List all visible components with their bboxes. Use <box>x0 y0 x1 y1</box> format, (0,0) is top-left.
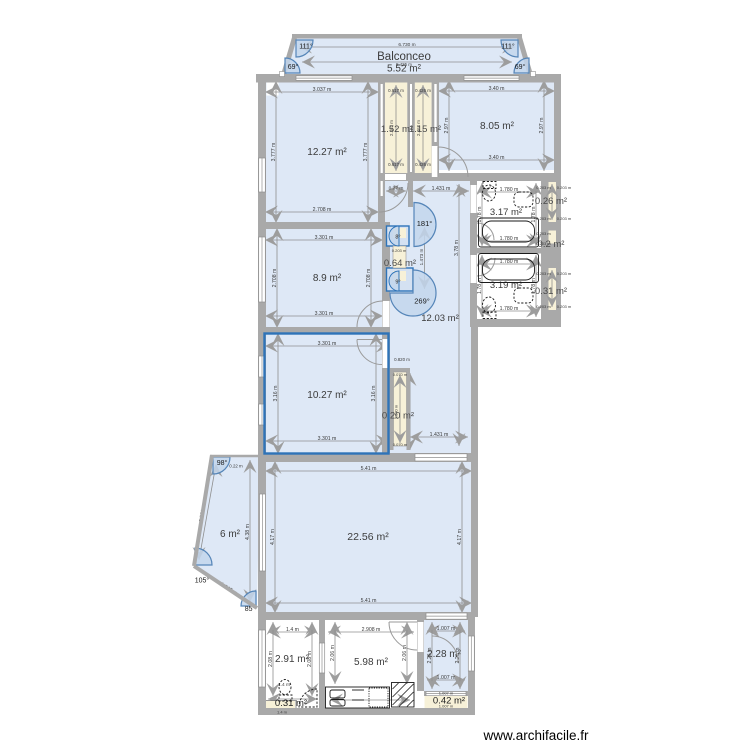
svg-text:1.473 m: 1.473 m <box>419 249 424 266</box>
svg-text:0.77 m: 0.77 m <box>389 186 404 192</box>
svg-text:2.708 m: 2.708 m <box>272 269 278 288</box>
svg-text:98°: 98° <box>217 459 228 467</box>
svg-text:0.203 m: 0.203 m <box>392 248 407 253</box>
svg-text:4.17 m: 4.17 m <box>270 529 276 545</box>
svg-text:3.037 m: 3.037 m <box>313 87 332 93</box>
svg-text:2.08 m: 2.08 m <box>268 651 274 667</box>
svg-text:1.431 m: 1.431 m <box>430 432 449 438</box>
svg-text:2.06 m: 2.06 m <box>330 645 336 661</box>
svg-text:2.97 m: 2.97 m <box>539 118 545 134</box>
svg-text:10.27 m²: 10.27 m² <box>307 390 347 401</box>
svg-text:3.777 m: 3.777 m <box>271 143 277 162</box>
svg-text:0.203 m: 0.203 m <box>536 185 551 190</box>
svg-text:2.91 m²: 2.91 m² <box>275 654 310 665</box>
svg-text:2.708 m: 2.708 m <box>366 269 372 288</box>
svg-text:22.56 m²: 22.56 m² <box>347 531 389 543</box>
svg-text:4.17 m: 4.17 m <box>457 529 463 545</box>
svg-text:0.203 m: 0.203 m <box>557 216 572 221</box>
svg-text:1.431 m: 1.431 m <box>432 186 451 192</box>
svg-text:1.78 m: 1.78 m <box>477 278 483 294</box>
svg-text:3.17 m²: 3.17 m² <box>490 207 522 218</box>
svg-text:1.4 m: 1.4 m <box>286 627 299 633</box>
svg-text:5.98 m²: 5.98 m² <box>354 657 389 668</box>
svg-text:5.41 m: 5.41 m <box>361 466 377 472</box>
svg-text:0.203 m: 0.203 m <box>536 304 551 309</box>
svg-text:9°: 9° <box>395 280 400 286</box>
svg-text:181°: 181° <box>417 219 433 228</box>
svg-text:0.617 m: 0.617 m <box>388 162 404 167</box>
svg-text:269°: 269° <box>414 297 430 306</box>
svg-text:5.425 m: 5.425 m <box>396 62 412 67</box>
svg-text:3.301 m: 3.301 m <box>318 436 337 442</box>
svg-text:4.38 m: 4.38 m <box>245 524 251 540</box>
svg-text:0.203 m: 0.203 m <box>557 304 572 309</box>
svg-text:0.31 m²: 0.31 m² <box>535 286 567 297</box>
svg-text:5.41 m: 5.41 m <box>361 598 377 604</box>
svg-text:3.301 m: 3.301 m <box>318 341 337 347</box>
svg-text:2.708 m: 2.708 m <box>313 207 332 213</box>
svg-text:0.64 m²: 0.64 m² <box>384 258 416 269</box>
svg-text:0.22 m: 0.22 m <box>229 464 243 469</box>
svg-text:69°: 69° <box>288 63 299 71</box>
svg-text:2.28 m²: 2.28 m² <box>427 649 462 660</box>
svg-text:12.27 m²: 12.27 m² <box>307 147 347 158</box>
svg-text:0.26 m²: 0.26 m² <box>535 196 567 207</box>
svg-text:69°: 69° <box>515 63 526 71</box>
svg-text:111°: 111° <box>501 43 515 51</box>
svg-text:0.203 m: 0.203 m <box>557 271 572 276</box>
svg-text:3.16 m: 3.16 m <box>273 386 279 402</box>
svg-text:3.301 m: 3.301 m <box>315 235 334 241</box>
svg-text:3.78 m: 3.78 m <box>454 240 460 256</box>
svg-text:1.007 m: 1.007 m <box>437 626 456 632</box>
svg-text:0.20 m²: 0.20 m² <box>382 411 414 422</box>
svg-text:0.617 m: 0.617 m <box>388 88 404 93</box>
svg-text:0.426 m: 0.426 m <box>415 162 431 167</box>
svg-text:0.070 m: 0.070 m <box>393 372 408 377</box>
svg-text:8°: 8° <box>395 235 400 241</box>
svg-text:3.16 m: 3.16 m <box>371 386 377 402</box>
svg-text:1.780 m: 1.780 m <box>500 259 519 265</box>
svg-text:2.97 m: 2.97 m <box>444 118 450 134</box>
svg-text:1.780 m: 1.780 m <box>500 306 519 312</box>
svg-text:1.780 m: 1.780 m <box>500 187 519 193</box>
svg-text:3.777 m: 3.777 m <box>363 143 369 162</box>
svg-text:111°: 111° <box>299 43 313 51</box>
svg-text:1.4 m: 1.4 m <box>277 710 288 715</box>
svg-text:6.730 m: 6.730 m <box>398 42 415 48</box>
svg-text:0.820 m: 0.820 m <box>394 357 410 362</box>
svg-text:3.40 m: 3.40 m <box>489 155 505 161</box>
svg-text:6 m²: 6 m² <box>220 529 241 540</box>
svg-text:3.301 m: 3.301 m <box>315 311 334 317</box>
svg-text:8.9 m²: 8.9 m² <box>313 273 342 284</box>
svg-text:1.78 m: 1.78 m <box>477 207 483 223</box>
svg-text:8.05 m²: 8.05 m² <box>480 121 515 132</box>
svg-text:1.780 m: 1.780 m <box>500 236 519 242</box>
svg-text:1.4 m: 1.4 m <box>278 682 290 688</box>
svg-text:www.archifacile.fr: www.archifacile.fr <box>482 728 589 743</box>
svg-text:0.42 m²: 0.42 m² <box>433 696 465 707</box>
svg-text:0.203 m: 0.203 m <box>557 185 572 190</box>
svg-text:0.070 m: 0.070 m <box>393 442 408 447</box>
svg-text:1.007 m: 1.007 m <box>437 675 456 681</box>
svg-text:1.15 m²: 1.15 m² <box>409 124 441 135</box>
svg-text:3.19 m²: 3.19 m² <box>490 280 522 291</box>
svg-text:12.03 m²: 12.03 m² <box>421 313 459 324</box>
svg-text:105°: 105° <box>195 577 210 585</box>
svg-text:0.426 m: 0.426 m <box>415 88 431 93</box>
svg-text:3.40 m: 3.40 m <box>489 86 505 92</box>
svg-text:2.908 m: 2.908 m <box>362 627 381 633</box>
svg-text:0.2 m²: 0.2 m² <box>538 239 565 250</box>
